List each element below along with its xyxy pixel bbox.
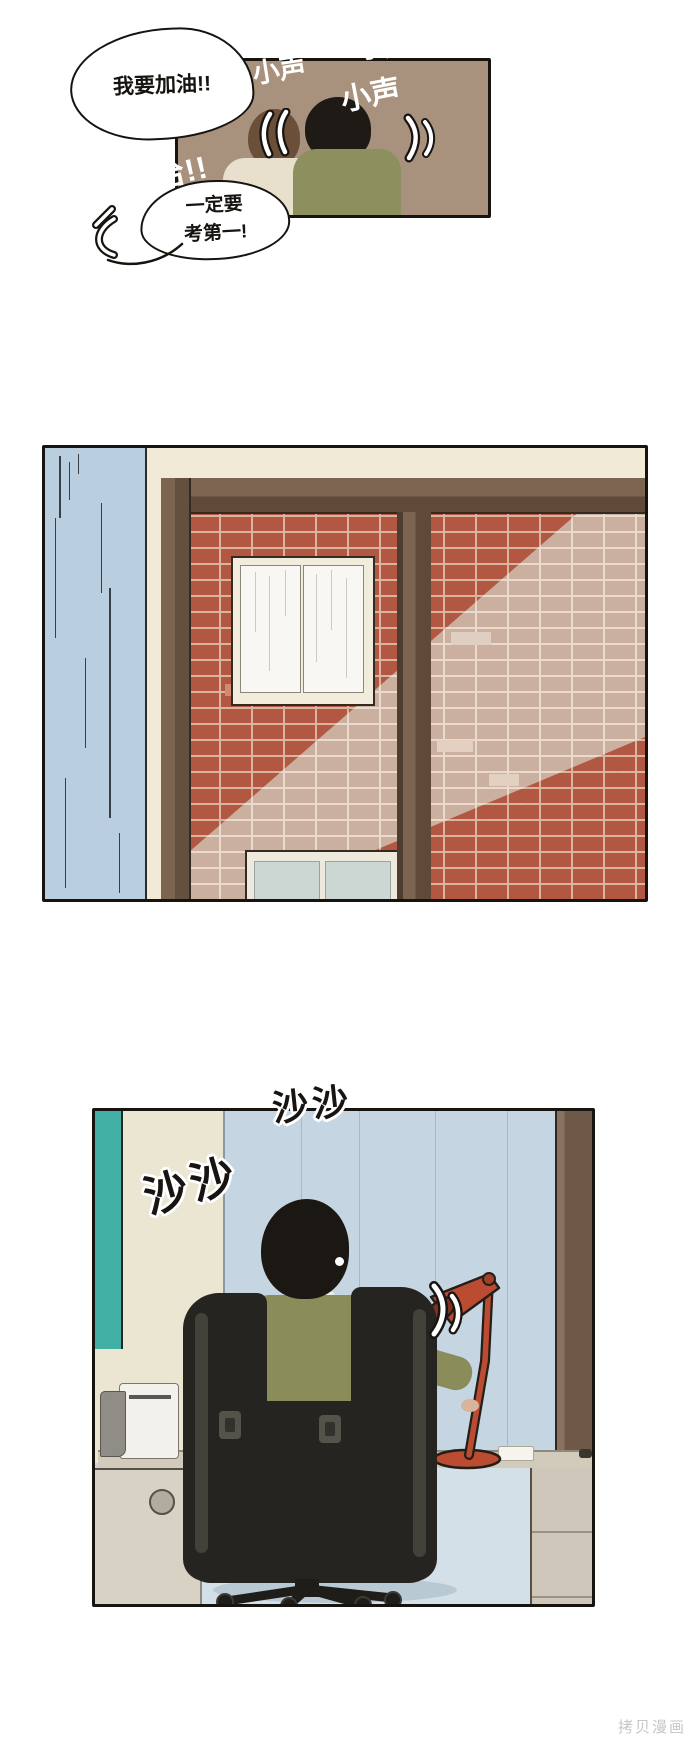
- panel-window: [42, 445, 648, 902]
- printer-slot: [129, 1395, 171, 1399]
- whisper-sfx-1: 小声: [249, 44, 308, 91]
- speech-bubble-resolve-tail: [100, 238, 190, 278]
- whisper-brackets-left-icon: [254, 108, 298, 160]
- lower-neighbour-window: [245, 850, 401, 901]
- window-frame-left: [161, 478, 191, 899]
- window-frame-mullion: [397, 512, 431, 899]
- earphone: [335, 1257, 344, 1266]
- chair-adjust-slot: [319, 1415, 341, 1443]
- curtain: [45, 448, 147, 899]
- person-hair: [261, 1199, 349, 1299]
- rustle-sfx-1: 沙沙: [270, 1072, 355, 1132]
- brick-patch: [489, 774, 519, 786]
- watermark: 拷贝漫画: [618, 1716, 686, 1737]
- comic-page: 小声 小声 小声 我要加油!! 卅 呜哈哈哈!! 一定要 考第一!: [0, 0, 690, 1743]
- cabinet-knob: [149, 1489, 175, 1515]
- chair-adjust-slot: [219, 1411, 241, 1439]
- speech-bubble-resolve-line1: 一定要: [185, 191, 243, 221]
- brick-patch: [437, 740, 473, 752]
- speech-bubble-resolve-line2: 考第一!: [183, 218, 248, 249]
- neighbour-window: [231, 556, 375, 706]
- whisper-brackets-right-icon: [398, 112, 438, 164]
- brick-patch: [451, 632, 491, 645]
- speech-bubble-cheer-text: 我要加油!!: [113, 67, 212, 100]
- neighbour-window-pane-right: [303, 565, 364, 693]
- window-frame-top: [161, 478, 645, 514]
- neighbour-window-pane-left: [240, 565, 301, 693]
- right-cabinet: [530, 1468, 594, 1604]
- chair-highlight: [195, 1313, 208, 1553]
- accent-wall-teal: [95, 1111, 123, 1349]
- person-hand: [461, 1399, 479, 1412]
- chair-base-icon: [185, 1581, 435, 1607]
- printer-side: [100, 1391, 126, 1457]
- whisper-sfx-2: 小声: [356, 25, 411, 66]
- right-person-body: [293, 149, 401, 218]
- rustle-stroke-icon: [420, 1278, 468, 1350]
